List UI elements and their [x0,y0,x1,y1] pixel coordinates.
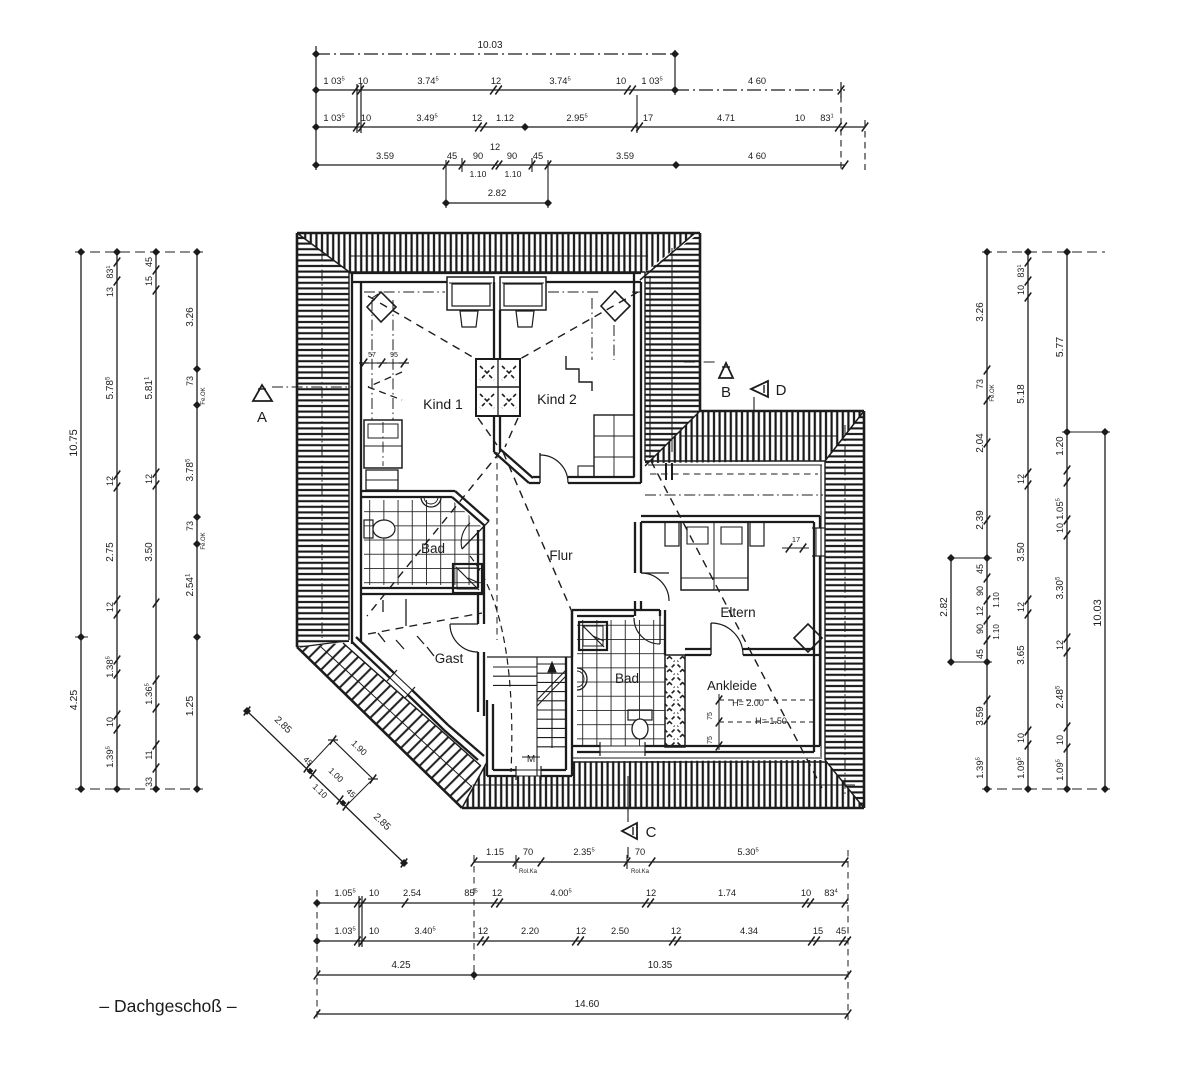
svg-text:5.77: 5.77 [1054,337,1066,358]
svg-text:Flur: Flur [549,548,573,563]
svg-text:10: 10 [795,113,805,123]
svg-text:Rol.Ka: Rol.Ka [519,869,538,875]
svg-text:4.71: 4.71 [717,113,735,123]
svg-text:10: 10 [369,888,379,898]
svg-text:45: 45 [144,257,154,267]
svg-text:Ankleide: Ankleide [707,678,757,693]
svg-text:12: 12 [1016,474,1026,484]
svg-text:14.60: 14.60 [575,999,600,1010]
svg-text:1.12: 1.12 [496,113,514,123]
svg-text:73: 73 [975,379,985,389]
svg-text:90: 90 [473,151,483,161]
svg-text:10.75: 10.75 [68,429,80,457]
svg-text:Gast: Gast [435,651,464,666]
svg-text:12: 12 [490,142,500,152]
svg-text:1.15: 1.15 [486,847,504,857]
svg-text:3.59: 3.59 [616,151,634,161]
svg-text:Eltern: Eltern [720,605,755,620]
svg-text:12: 12 [671,926,681,936]
svg-text:Fe.OK: Fe.OK [201,532,207,549]
svg-text:12: 12 [478,926,488,936]
svg-text:12: 12 [105,476,115,486]
svg-text:3.65: 3.65 [1016,645,1027,665]
svg-text:10: 10 [1016,285,1026,295]
svg-text:4 60: 4 60 [748,151,766,161]
svg-text:10: 10 [1016,733,1026,743]
svg-text:12: 12 [576,926,586,936]
svg-text:12: 12 [1016,602,1026,612]
svg-text:75: 75 [707,712,714,720]
svg-text:2.54: 2.54 [403,888,421,898]
svg-text:4 60: 4 60 [748,76,766,86]
svg-text:11: 11 [144,750,154,759]
svg-text:A: A [257,409,267,426]
svg-text:3.50: 3.50 [144,542,155,562]
svg-text:10.35: 10.35 [648,960,673,971]
svg-text:90: 90 [975,624,985,634]
svg-text:10: 10 [369,926,379,936]
svg-text:1.10: 1.10 [992,624,1001,640]
svg-text:12: 12 [105,602,115,612]
svg-text:3.26: 3.26 [185,307,196,327]
svg-text:15: 15 [813,926,823,936]
svg-text:1.25: 1.25 [184,696,196,717]
svg-text:H= 1.50: H= 1.50 [755,716,787,726]
svg-text:Bad: Bad [615,671,639,686]
svg-text:90: 90 [975,586,985,596]
svg-text:– Dachgeschoß –: – Dachgeschoß – [99,996,236,1016]
svg-text:45: 45 [447,151,457,161]
svg-text:3.50: 3.50 [1016,542,1027,562]
svg-text:B: B [721,384,731,401]
svg-text:2.20: 2.20 [521,926,539,936]
svg-text:12: 12 [144,474,154,484]
svg-text:4.25: 4.25 [68,690,80,711]
svg-text:10: 10 [616,76,626,86]
svg-text:1.74: 1.74 [718,888,736,898]
svg-text:17: 17 [792,535,800,544]
svg-text:12: 12 [472,113,482,123]
svg-text:C: C [646,824,657,841]
svg-text:5.18: 5.18 [1016,384,1027,404]
svg-text:57: 57 [368,352,376,359]
svg-text:73: 73 [185,521,195,531]
svg-text:4.25: 4.25 [391,960,411,971]
svg-text:10: 10 [105,717,115,727]
svg-text:Kind 1: Kind 1 [423,396,463,412]
svg-text:10: 10 [801,888,811,898]
svg-text:2.75: 2.75 [105,542,116,562]
svg-text:Fe.OK: Fe.OK [990,384,996,401]
svg-text:70: 70 [635,847,645,857]
svg-text:2.04: 2.04 [975,433,986,453]
svg-text:3.59: 3.59 [376,151,394,161]
svg-text:1.10: 1.10 [992,592,1001,608]
svg-text:45: 45 [533,151,543,161]
svg-text:12: 12 [492,888,502,898]
svg-text:73: 73 [185,376,195,386]
svg-text:95: 95 [390,352,398,359]
svg-text:1.20: 1.20 [1055,436,1066,456]
svg-text:90: 90 [507,151,517,161]
svg-text:Bad: Bad [421,541,445,556]
svg-text:2.82: 2.82 [488,188,507,199]
svg-text:Fe.OK: Fe.OK [201,387,207,404]
svg-text:Kind 2: Kind 2 [537,391,577,407]
svg-text:2.50: 2.50 [611,926,629,936]
svg-text:2.39: 2.39 [975,510,986,530]
svg-text:70: 70 [523,847,533,857]
svg-text:12: 12 [1055,640,1065,650]
svg-text:15: 15 [144,276,154,286]
svg-text:M: M [527,754,535,765]
svg-text:17: 17 [643,113,653,123]
svg-text:45: 45 [975,564,985,574]
svg-text:33: 33 [144,777,154,787]
svg-text:10.03: 10.03 [1092,599,1104,627]
svg-text:10: 10 [361,113,371,123]
svg-text:1.10: 1.10 [470,169,487,179]
svg-text:3.26: 3.26 [975,302,986,322]
svg-text:45: 45 [836,926,846,936]
svg-text:12: 12 [975,606,985,616]
svg-text:10: 10 [1055,735,1065,745]
svg-text:75: 75 [707,736,714,744]
svg-text:1.10: 1.10 [505,169,522,179]
svg-text:D: D [776,382,787,399]
svg-text:10.03: 10.03 [477,40,502,51]
svg-text:45: 45 [975,649,985,659]
svg-text:10: 10 [358,76,368,86]
svg-text:2.82: 2.82 [939,597,950,617]
svg-text:10: 10 [1055,523,1065,533]
svg-text:12: 12 [491,76,501,86]
svg-text:13: 13 [105,287,115,297]
svg-text:12: 12 [646,888,656,898]
svg-text:Rol.Ka: Rol.Ka [631,869,650,875]
svg-text:4.34: 4.34 [740,926,758,936]
